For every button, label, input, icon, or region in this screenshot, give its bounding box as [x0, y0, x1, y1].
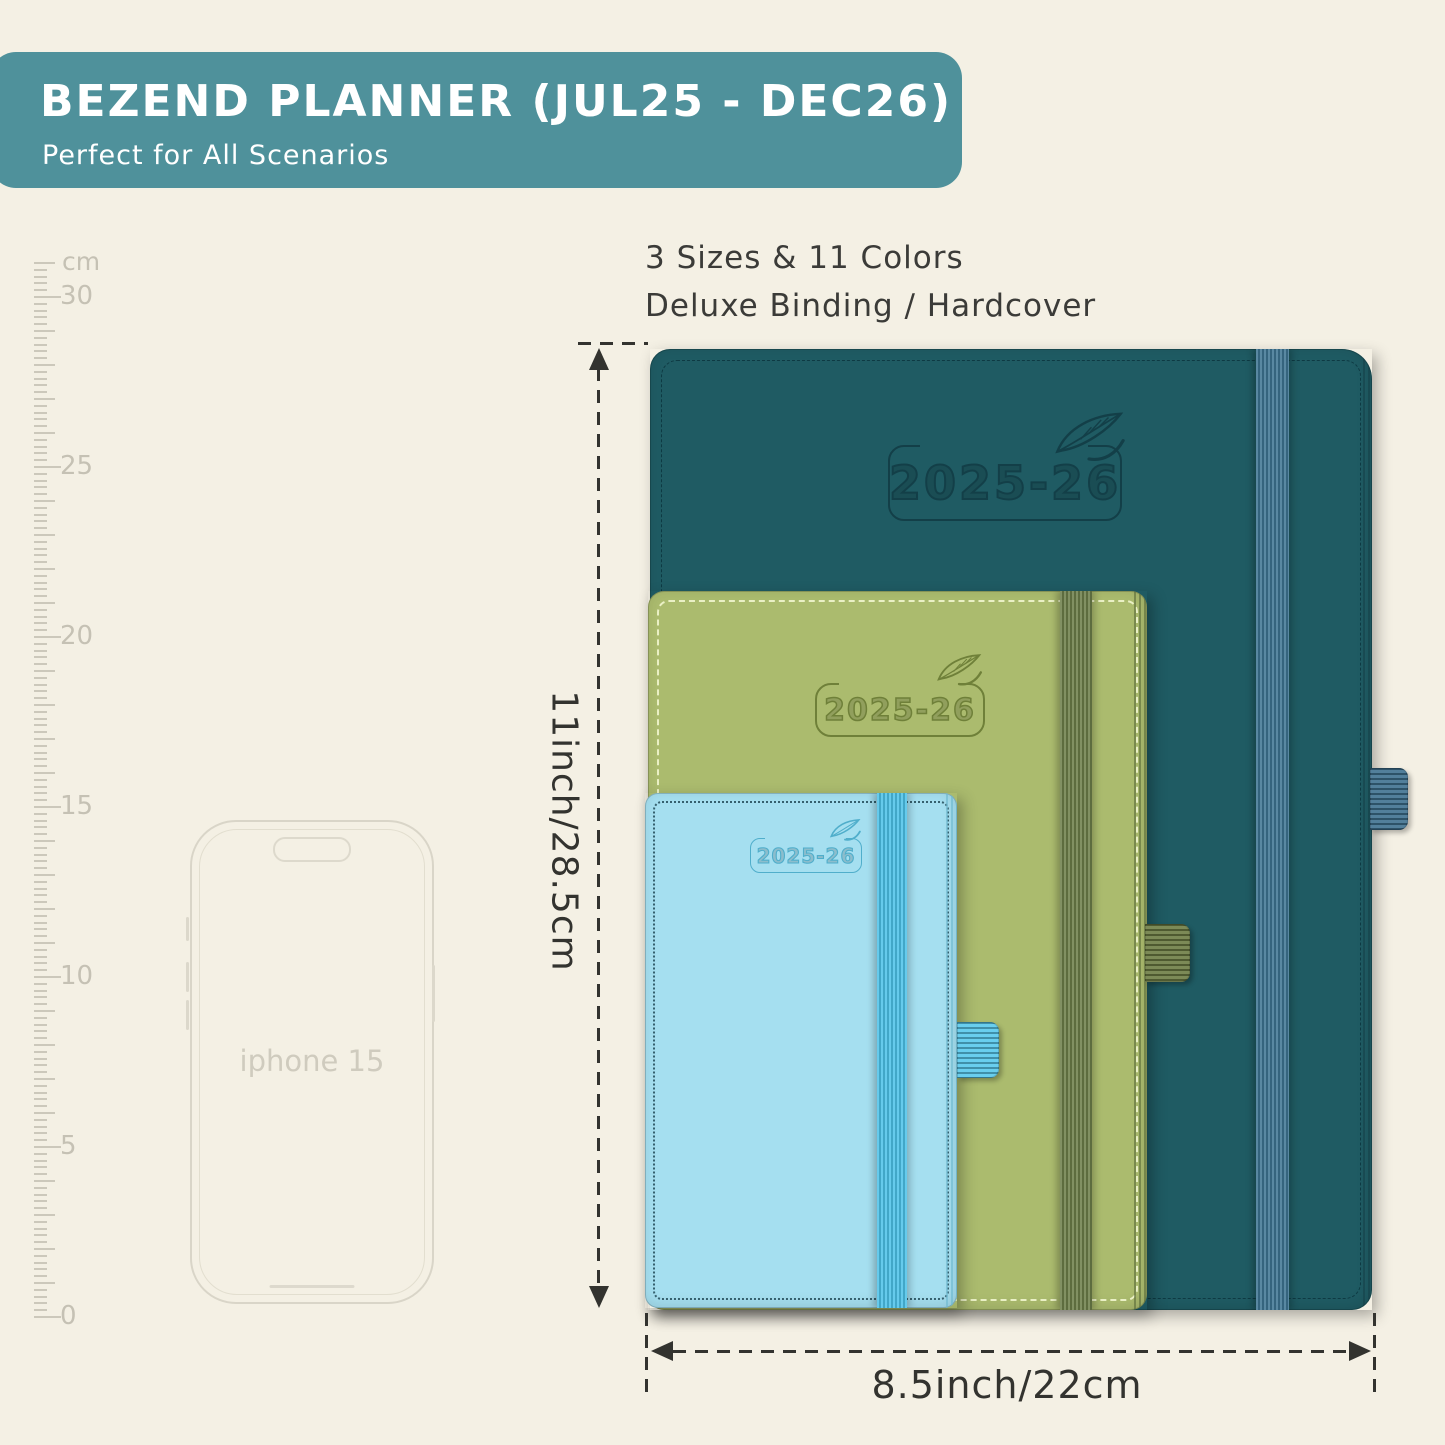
ruler-tick: [34, 466, 61, 468]
ruler-tick: [34, 1262, 47, 1264]
ruler-tick: [34, 799, 47, 801]
width-dimension-left-tick: [645, 1313, 648, 1397]
ruler-number-label: 10: [60, 961, 93, 991]
ruler-tick: [34, 1194, 47, 1196]
width-dimension-arrow-left: [651, 1341, 673, 1361]
ruler-tick: [34, 534, 55, 536]
ruler-unit-label: cm: [62, 247, 100, 276]
ruler-tick: [34, 602, 55, 604]
ruler-tick: [34, 371, 47, 373]
ruler-tick: [34, 1228, 47, 1230]
planner-medium-year-emboss: 2025-26: [824, 693, 976, 728]
ruler-tick: [34, 1302, 47, 1304]
ruler-tick: [34, 867, 47, 869]
ruler-tick: [34, 486, 47, 488]
ruler-tick: [34, 548, 47, 550]
ruler-tick: [34, 303, 47, 305]
ruler-tick: [34, 1275, 47, 1277]
ruler-tick: [34, 888, 47, 890]
feather-quill-icon: [1050, 409, 1128, 465]
ruler-tick: [34, 541, 47, 543]
ruler-tick: [34, 711, 47, 713]
planner-large-pen-loop: [1370, 768, 1408, 830]
ruler-tick: [34, 330, 55, 332]
ruler-tick: [34, 806, 61, 808]
ruler-tick: [34, 316, 47, 318]
ruler-tick: [34, 697, 47, 699]
ruler-tick: [34, 1160, 47, 1162]
ruler-tick: [34, 990, 47, 992]
ruler-tick: [34, 629, 47, 631]
ruler-tick: [34, 1126, 47, 1128]
ruler-tick: [34, 520, 47, 522]
ruler-tick: [34, 296, 61, 298]
ruler-tick: [34, 262, 55, 264]
ruler-number-label: 25: [60, 451, 93, 481]
ruler-tick: [34, 956, 47, 958]
ruler-tick: [34, 718, 47, 720]
ruler-tick: [34, 269, 47, 271]
ruler-tick: [34, 745, 47, 747]
planner-small: 2025-26: [645, 793, 957, 1308]
ruler-tick: [34, 1200, 47, 1202]
ruler-tick: [34, 1221, 47, 1223]
ruler-tick: [34, 425, 47, 427]
height-dimension-arrow-down: [589, 1286, 609, 1308]
ruler-tick: [34, 1051, 47, 1053]
ruler-tick: [34, 1166, 47, 1168]
iphone-action-button: [186, 917, 189, 941]
ruler-tick: [34, 949, 47, 951]
feature-line-sizes: 3 Sizes & 11 Colors: [645, 240, 964, 276]
ruler-tick: [34, 1146, 61, 1148]
planner-large-elastic-band: [1256, 349, 1289, 1310]
planner-small-year-emboss: 2025-26: [757, 844, 856, 868]
ruler-tick: [34, 452, 47, 454]
feather-quill-icon: [934, 651, 984, 689]
ruler-tick: [34, 1085, 47, 1087]
ruler-tick: [34, 561, 47, 563]
ruler-tick: [34, 942, 55, 944]
ruler-tick: [34, 704, 55, 706]
ruler-tick: [34, 378, 47, 380]
ruler-tick: [34, 1017, 47, 1019]
ruler-tick: [34, 344, 47, 346]
ruler-tick: [34, 323, 47, 325]
ruler-tick: [34, 527, 47, 529]
ruler-tick: [34, 786, 47, 788]
ruler-tick: [34, 500, 55, 502]
height-dimension-line: [597, 368, 600, 1288]
ruler-tick: [34, 840, 55, 842]
height-dimension-arrow-up: [589, 348, 609, 370]
ruler-tick: [34, 493, 47, 495]
iphone-volume-up-button: [186, 962, 189, 992]
iphone-power-button: [432, 965, 435, 1022]
ruler-tick: [34, 310, 47, 312]
ruler-tick: [34, 1268, 47, 1270]
ruler-tick: [34, 758, 47, 760]
planner-small-logo-frame: 2025-26: [750, 838, 862, 873]
ruler-tick: [34, 1173, 47, 1175]
planner-medium-logo-frame: 2025-26: [815, 683, 985, 737]
page-title: BEZEND PLANNER (JUL25 - DEC26): [40, 76, 952, 127]
ruler-tick: [34, 1132, 47, 1134]
ruler-tick: [34, 1316, 61, 1318]
ruler-number-label: 0: [60, 1301, 77, 1331]
planner-small-page-edge: [946, 793, 957, 1308]
ruler-tick: [34, 928, 47, 930]
ruler-tick: [34, 636, 61, 638]
ruler-tick: [34, 874, 55, 876]
planner-small-cover: 2025-26: [645, 793, 957, 1308]
ruler-tick: [34, 765, 47, 767]
planner-small-elastic-band: [877, 793, 907, 1308]
ruler-tick: [34, 894, 47, 896]
ruler-tick: [34, 969, 47, 971]
ruler-tick: [34, 1024, 47, 1026]
ruler-tick: [34, 860, 47, 862]
ruler-tick: [34, 357, 47, 359]
ruler-tick: [34, 820, 47, 822]
ruler-tick: [34, 1153, 47, 1155]
ruler-tick: [34, 656, 47, 658]
ruler-tick: [34, 568, 55, 570]
ruler-tick: [34, 432, 55, 434]
ruler-tick: [34, 364, 55, 366]
ruler-tick: [34, 1139, 47, 1141]
ruler-tick: [34, 384, 47, 386]
ruler-tick: [34, 772, 55, 774]
ruler-tick: [34, 677, 47, 679]
iphone-speaker-line: [270, 1285, 355, 1288]
ruler-tick: [34, 826, 47, 828]
header-banner: BEZEND PLANNER (JUL25 - DEC26) Perfect f…: [0, 52, 962, 188]
ruler-tick: [34, 1098, 47, 1100]
ruler-tick: [34, 670, 55, 672]
ruler-tick: [34, 738, 55, 740]
ruler-tick: [34, 1207, 47, 1209]
width-dimension-arrow-right: [1349, 1341, 1371, 1361]
ruler-tick: [34, 595, 47, 597]
ruler-tick: [34, 1112, 55, 1114]
ruler-tick: [34, 935, 47, 937]
ruler-tick: [34, 847, 47, 849]
ruler-number-label: 20: [60, 621, 93, 651]
iphone-outline: iphone 15: [190, 820, 434, 1304]
ruler-tick: [34, 1187, 47, 1189]
ruler-tick: [34, 1119, 47, 1121]
ruler-tick: [34, 1248, 55, 1250]
ruler-tick: [34, 418, 47, 420]
page-subtitle: Perfect for All Scenarios: [42, 140, 389, 171]
ruler-tick: [34, 881, 47, 883]
ruler-tick: [34, 1030, 47, 1032]
ruler-tick: [34, 1255, 47, 1257]
ruler-tick: [34, 792, 47, 794]
width-dimension-right-tick: [1373, 1313, 1376, 1397]
ruler-tick: [34, 1092, 47, 1094]
ruler-tick: [34, 813, 47, 815]
ruler-tick: [34, 996, 47, 998]
ruler-tick: [34, 922, 47, 924]
ruler-tick: [34, 398, 55, 400]
ruler-tick: [34, 731, 47, 733]
ruler-tick: [34, 983, 47, 985]
ruler-tick: [34, 724, 47, 726]
ruler-tick: [34, 439, 47, 441]
ruler-tick: [34, 609, 47, 611]
ruler-tick: [34, 282, 47, 284]
planner-medium-elastic-band: [1060, 591, 1092, 1310]
ruler-tick: [34, 1003, 47, 1005]
feature-line-binding: Deluxe Binding / Hardcover: [645, 288, 1096, 324]
ruler-tick: [34, 582, 47, 584]
ruler-tick: [34, 915, 47, 917]
ruler-tick: [34, 507, 47, 509]
ruler-tick: [34, 480, 47, 482]
ruler-number-label: 30: [60, 281, 93, 311]
iphone-dynamic-island: [273, 837, 351, 862]
ruler-tick: [34, 1037, 47, 1039]
ruler-tick: [34, 289, 47, 291]
ruler-tick: [34, 752, 47, 754]
ruler-number-label: 5: [60, 1131, 77, 1161]
ruler-tick: [34, 684, 47, 686]
ruler-tick: [34, 1180, 55, 1182]
ruler-tick: [34, 276, 47, 278]
ruler-tick: [34, 616, 47, 618]
ruler-tick: [34, 1289, 47, 1291]
ruler-tick: [34, 643, 47, 645]
ruler-tick: [34, 962, 47, 964]
feather-quill-icon: [828, 817, 862, 843]
ruler-tick: [34, 690, 47, 692]
ruler-tick: [34, 1058, 47, 1060]
ruler-tick: [34, 1105, 47, 1107]
ruler-tick: [34, 908, 55, 910]
ruler-tick: [34, 350, 47, 352]
ruler-tick: [34, 1214, 55, 1216]
ruler-tick: [34, 1044, 55, 1046]
width-dimension-line: [673, 1350, 1351, 1353]
ruler-tick: [34, 575, 47, 577]
ruler-tick: [34, 1078, 55, 1080]
ruler-tick: [34, 779, 47, 781]
ruler-tick: [34, 650, 47, 652]
ruler-tick: [34, 473, 47, 475]
ruler-tick: [34, 1010, 55, 1012]
ruler-tick: [34, 854, 47, 856]
iphone-volume-down-button: [186, 1000, 189, 1030]
ruler-tick: [34, 622, 47, 624]
width-dimension-label: 8.5inch/22cm: [871, 1363, 1142, 1407]
planner-small-pen-loop: [957, 1022, 999, 1078]
planner-medium-pen-loop: [1145, 924, 1190, 982]
ruler-tick: [34, 514, 47, 516]
ruler-tick: [34, 833, 47, 835]
ruler-tick: [34, 459, 47, 461]
ruler-number-label: 15: [60, 791, 93, 821]
ruler-tick: [34, 391, 47, 393]
ruler-tick: [34, 976, 61, 978]
ruler-tick: [34, 405, 47, 407]
ruler-tick: [34, 1296, 47, 1298]
ruler-tick: [34, 1064, 47, 1066]
ruler-tick: [34, 588, 47, 590]
iphone-label: iphone 15: [192, 1044, 432, 1078]
ruler-tick: [34, 446, 47, 448]
ruler-tick: [34, 1234, 47, 1236]
ruler-tick: [34, 663, 47, 665]
ruler-tick: [34, 412, 47, 414]
ruler-tick: [34, 1309, 47, 1311]
ruler-tick: [34, 1241, 47, 1243]
ruler-tick: [34, 1071, 47, 1073]
ruler-tick: [34, 554, 47, 556]
ruler-tick: [34, 337, 47, 339]
height-dimension-top-tick: [578, 342, 648, 345]
ruler-tick: [34, 1282, 55, 1284]
height-dimension-label: 11inch/28.5cm: [544, 690, 585, 971]
ruler-tick: [34, 901, 47, 903]
product-infographic: BEZEND PLANNER (JUL25 - DEC26) Perfect f…: [0, 0, 1445, 1445]
